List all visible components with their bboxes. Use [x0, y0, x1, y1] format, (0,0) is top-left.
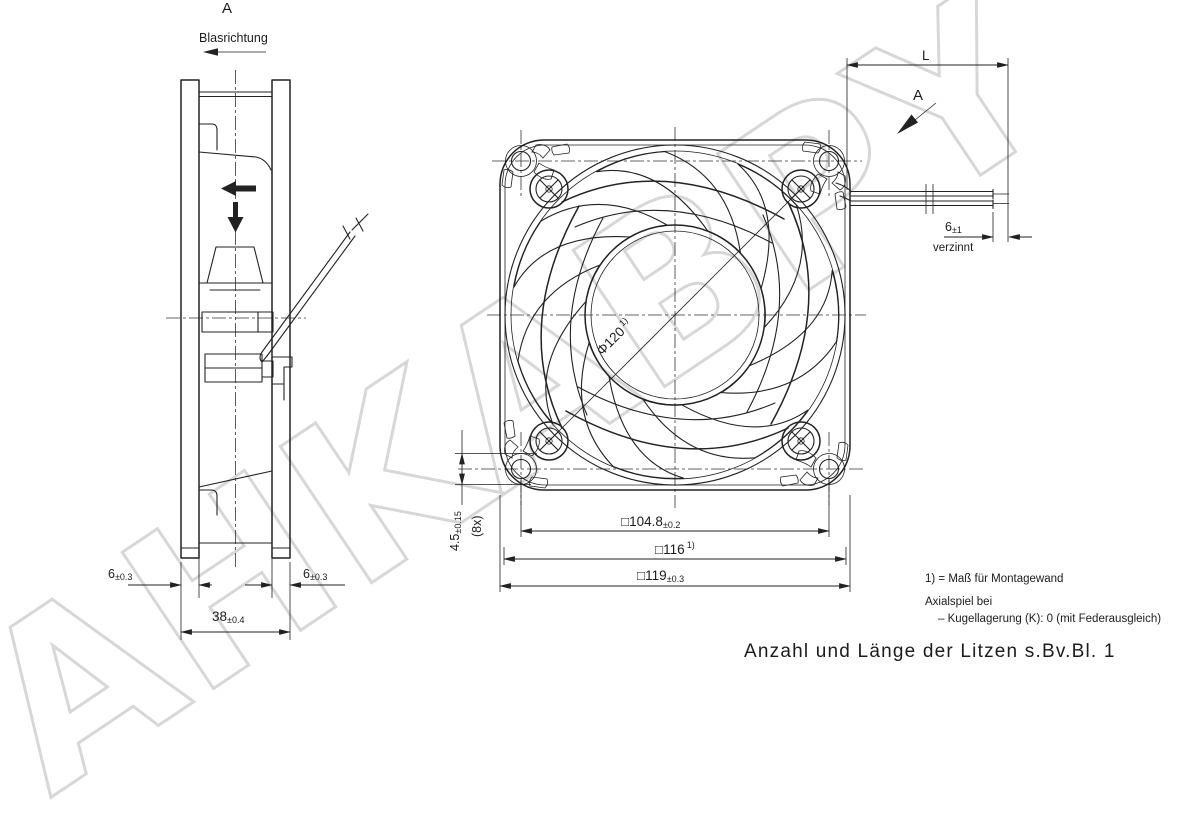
- airflow-left-arrow-icon: [221, 181, 256, 196]
- dim-hole-count: (8x): [470, 515, 484, 537]
- side-hub: [207, 247, 263, 283]
- blasrichtung-arrow-icon: [203, 48, 266, 56]
- airflow-down-arrow-icon: [228, 202, 244, 233]
- technical-drawing: AHKABPY A Blasrichtung: [0, 0, 1200, 820]
- verzinnt-label: verzinnt: [933, 242, 974, 254]
- dim-frame: □119±0.3: [637, 568, 684, 584]
- note-montagewand: 1) = Maß für Montagewand: [925, 573, 1063, 585]
- blasrichtung-label: Blasrichtung: [199, 31, 268, 45]
- note-kugellagerung: – Kugellagerung (K): 0 (mit Federausglei…: [938, 613, 1161, 625]
- side-motor-block: [202, 312, 273, 332]
- side-lead-wire: [262, 232, 355, 356]
- dim-mounting-wall: □1161): [655, 540, 695, 557]
- view-a-label-right: A: [913, 87, 923, 104]
- dim-lead-length: L: [922, 48, 930, 63]
- note-litzen: Anzahl und Länge der Litzen s.Bv.Bl. 1: [744, 641, 1116, 662]
- dim-hole-spacing: □104.8±0.2: [621, 514, 680, 530]
- note-axialspiel: Axialspiel bei: [925, 596, 992, 608]
- watermark: AHKABPY: [0, 0, 1098, 820]
- view-a-label-top: A: [222, 0, 232, 17]
